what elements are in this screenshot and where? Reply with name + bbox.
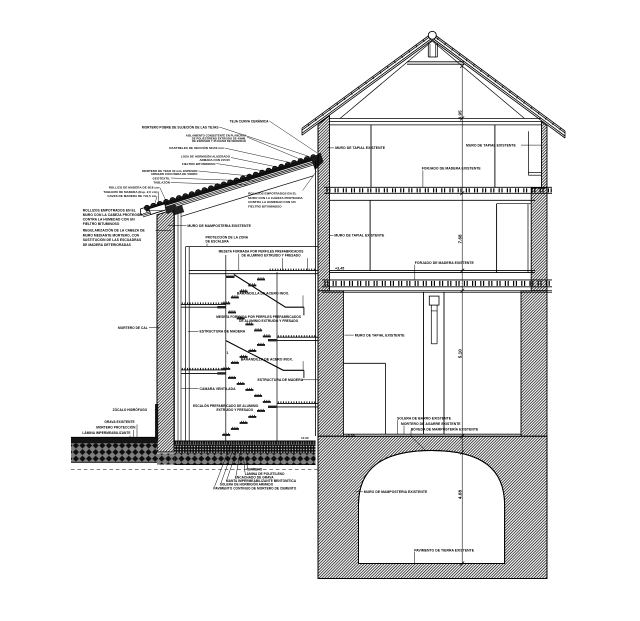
svg-text:3.95: 3.95 (457, 110, 462, 120)
svg-text:±0.00: ±0.00 (301, 436, 309, 440)
svg-text:LÁMINA IMPERMEABILIZANTE: LÁMINA IMPERMEABILIZANTE (82, 430, 130, 435)
svg-text:MORTERO DE AGARRE EXISTENTE: MORTERO DE AGARRE EXISTENTE (401, 422, 461, 426)
svg-text:MORTERO PROTECCIÓN: MORTERO PROTECCIÓN (96, 425, 136, 430)
svg-text:DE ESPESOR Y 35 KG/M3 DE DENSI: DE ESPESOR Y 35 KG/M3 DE DENSIDAD (192, 139, 246, 143)
svg-text:MURO DE TAPIAL EXISTENTE: MURO DE TAPIAL EXISTENTE (355, 334, 406, 338)
svg-text:ESTRUCTURA DE MADERA: ESTRUCTURA DE MADERA (200, 330, 246, 334)
svg-text:MURO DE TAPIAL EXISTENTE: MURO DE TAPIAL EXISTENTE (335, 146, 386, 150)
svg-text:RASTRELES DE SECCIÓN 30x50 mm: RASTRELES DE SECCIÓN 30x50 mm (169, 145, 224, 150)
svg-text:FIELTRO BITUMINOSO: FIELTRO BITUMINOSO (248, 204, 282, 208)
svg-text:MURO DE MAMPOSTERIA EXISTENTE: MURO DE MAMPOSTERIA EXISTENTE (364, 490, 428, 494)
svg-text:SUSTITUCIÓN DE LAS ESCUADRAS: SUSTITUCIÓN DE LAS ESCUADRAS (83, 237, 142, 242)
svg-text:DE ALUMINIO EXTRUIDO Y FRESADO: DE ALUMINIO EXTRUIDO Y FRESADO (242, 254, 302, 258)
svg-text:FIELTRO BITUMINOSO: FIELTRO BITUMINOSO (182, 162, 216, 166)
svg-text:MORTERO DE CAL: MORTERO DE CAL (118, 326, 148, 330)
svg-text:EXTRUIDO Y FRESADO: EXTRUIDO Y FRESADO (217, 408, 254, 412)
svg-text:CONTRA LA HUMEDAD CON UN: CONTRA LA HUMEDAD CON UN (83, 218, 136, 222)
svg-text:MURO DE MAMPOSTERIA EXISTENTE: MURO DE MAMPOSTERIA EXISTENTE (187, 224, 251, 228)
svg-text:+3,45: +3,45 (335, 266, 344, 270)
svg-text:TERRENO: TERRENO (246, 467, 262, 471)
svg-text:BÓVEDA DE MAMPOSTERÍA EXISTENT: BÓVEDA DE MAMPOSTERÍA EXISTENTE (411, 426, 479, 431)
svg-text:7.68: 7.68 (457, 234, 462, 244)
svg-text:GRAVA EXISTENTE: GRAVA EXISTENTE (104, 420, 134, 424)
svg-text:REGULARIZACIÓN DE LA CABEZA DE: REGULARIZACIÓN DE LA CABEZA DE (83, 228, 146, 233)
svg-text:TABLERO DE MADERA (Esp. 2,0 cm: TABLERO DE MADERA (Esp. 2,0 cm) (103, 190, 157, 194)
svg-text:FIELTRO BITUMINOSO: FIELTRO BITUMINOSO (83, 222, 120, 226)
svg-text:MURO DE TAPIAL EXISTENTE: MURO DE TAPIAL EXISTENTE (466, 144, 517, 148)
svg-text:ESTRUCTURA DE MADERA: ESTRUCTURA DE MADERA (258, 378, 304, 382)
svg-text:±0,00: ±0,00 (346, 434, 355, 438)
svg-text:PAVIMENTO CONTINUO DE MORTERO: PAVIMENTO CONTINUO DE MORTERO DE CEMENTO (213, 486, 296, 490)
svg-text:CAVES DE MADERA DE 7x0,5 cm: CAVES DE MADERA DE 7x0,5 cm (107, 194, 156, 198)
svg-text:CAMARA VENTILADA: CAMARA VENTILADA (200, 387, 237, 391)
svg-text:PAVIMENTO DE TIERRA EXISTENTE: PAVIMENTO DE TIERRA EXISTENTE (414, 549, 475, 553)
svg-text:TEJA CURVA CERÁMICA: TEJA CURVA CERÁMICA (230, 118, 269, 123)
svg-text:MORTERO POBRE DE SUJECIÓN DE L: MORTERO POBRE DE SUJECIÓN DE LAS TEJAS (142, 124, 219, 129)
svg-text:SOLERA DE BARRO EXISTENTE: SOLERA DE BARRO EXISTENTE (397, 417, 452, 421)
svg-text:4.08: 4.08 (457, 490, 462, 500)
svg-text:ZÓCALO HIDRÓFUGO: ZÓCALO HIDRÓFUGO (113, 407, 148, 412)
svg-text:BARANDILLA DE ACERO INOX.: BARANDILLA DE ACERO INOX. (241, 358, 293, 362)
svg-text:DE MADERA DETERIORADAS: DE MADERA DETERIORADAS (83, 243, 132, 247)
svg-text:FORJADO DE MADERA EXISTENTE: FORJADO DE MADERA EXISTENTE (415, 261, 475, 265)
svg-text:FORJADO DE MADERA EXISTENTE: FORJADO DE MADERA EXISTENTE (422, 167, 482, 171)
svg-text:DE ALUMINIO EXTRUIDO Y FRESADO: DE ALUMINIO EXTRUIDO Y FRESADO (239, 319, 299, 323)
svg-text:MURO DE TAPIAL EXISTENTE: MURO DE TAPIAL EXISTENTE (334, 234, 385, 238)
svg-text:5.10: 5.10 (457, 349, 462, 359)
svg-text:1: 1 (227, 351, 229, 355)
svg-text:TABLAZÓN: TABLAZÓN (153, 180, 170, 185)
svg-text:ROLLIZOS EMPOTRADOS EN EL: ROLLIZOS EMPOTRADOS EN EL (83, 208, 136, 212)
svg-text:BARANDILLA DE ACERO INOX.: BARANDILLA DE ACERO INOX. (237, 292, 289, 296)
svg-text:MURO CON LA CABEZA PROTEGIDA: MURO CON LA CABEZA PROTEGIDA (83, 213, 144, 217)
svg-text:DE ESCALERA: DE ESCALERA (206, 239, 230, 243)
svg-text:MURO MEDIANTE MORTERO, CON: MURO MEDIANTE MORTERO, CON (83, 233, 140, 237)
